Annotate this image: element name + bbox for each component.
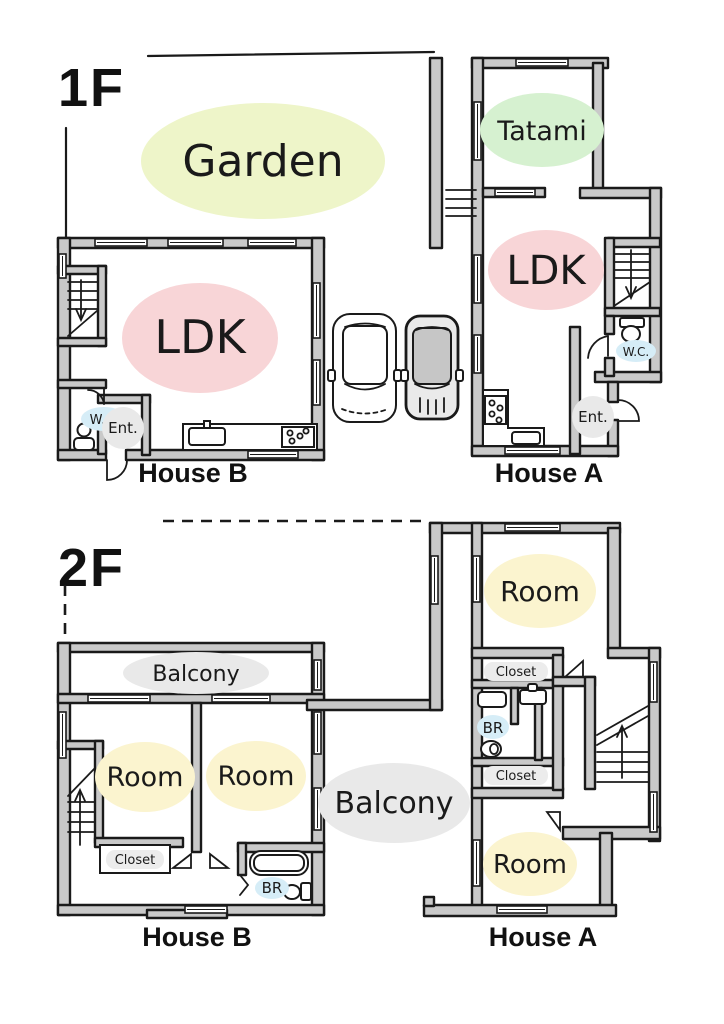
garden-label: Garden — [182, 136, 343, 187]
room-right-label-house-b-2f: Room — [218, 761, 295, 792]
toilet-icon-house-a-1f — [620, 318, 644, 342]
house-b-1f: W.C. Ent. LDK House B — [58, 238, 324, 488]
ent-label-house-a-1f: Ent. — [578, 408, 608, 426]
entry-door-arc-house-b-1f — [107, 460, 127, 480]
bathroom-house-b-2f: BR — [240, 851, 311, 900]
parking-area-1f — [328, 314, 463, 422]
staircase-house-a-2f — [597, 706, 648, 782]
floor-plan-drawing: 1F Garden — [0, 0, 724, 1024]
closet-bottom-label-house-a-2f: Closet — [496, 769, 537, 784]
car-icon-white — [328, 314, 401, 422]
staircase-house-a-1f — [614, 250, 650, 306]
floor2-label: 2F — [58, 538, 125, 598]
closet-top-label-house-a-2f: Closet — [496, 665, 537, 680]
balcony-center-label: Balcony — [335, 786, 454, 821]
central-balcony-2f: Balcony — [307, 700, 470, 843]
room-left-label-house-b-2f: Room — [107, 762, 184, 793]
wc-label-house-a-1f: W.C. — [623, 345, 650, 359]
closet-bottom-house-a-2f: Closet — [484, 766, 548, 785]
wc-house-a-1f: W.C. — [588, 318, 656, 362]
ldk-label-house-b-1f: LDK — [154, 310, 247, 364]
house-b-1f-caption: House B — [138, 458, 248, 488]
ent-label-house-b-1f: Ent. — [108, 419, 138, 437]
house-a-1f-caption: House A — [495, 458, 604, 488]
tatami-label-house-a-1f: Tatami — [496, 116, 587, 147]
kitchen-counter-house-b-1f — [183, 421, 317, 450]
house-a-2f-caption: House A — [489, 922, 598, 952]
kitchen-counter-house-a-1f — [483, 390, 544, 446]
floor-plan-page: 1F Garden — [0, 0, 724, 1024]
floor1-plan: 1F Garden — [58, 52, 661, 488]
closet-top-house-a-2f: Closet — [484, 662, 548, 681]
entry-door-arc-house-a-1f — [618, 400, 639, 421]
closet-label-house-b-2f: Closet — [115, 853, 156, 868]
floor1-label: 1F — [58, 58, 125, 118]
room-top-label-house-a-2f: Room — [500, 575, 580, 608]
room-door-leafs-house-b-2f — [173, 854, 228, 868]
balcony-label-house-b-2f: Balcony — [152, 662, 239, 687]
staircase-house-b-1f — [68, 280, 98, 336]
car-icon-gray — [401, 316, 463, 419]
entrance-house-a-1f: Ent. — [572, 396, 639, 438]
staircase-house-b-2f — [68, 768, 95, 845]
closet-house-b-2f: Closet — [100, 845, 170, 873]
ldk-label-house-a-1f: LDK — [506, 248, 587, 294]
house-a-2f: Room Closet BR Closet — [424, 523, 660, 952]
br-label-house-a-2f: BR — [483, 719, 504, 737]
floor2-plan: 2F — [58, 521, 660, 952]
house-b-2f-caption: House B — [142, 922, 252, 952]
house-b-2f: Balcony Closet — [58, 643, 324, 952]
toilet-icon-house-a-2f — [481, 741, 501, 757]
br-label-house-b-2f: BR — [262, 879, 283, 897]
house-a-1f: Tatami W.C. — [430, 58, 661, 488]
room-bottom-label-house-a-2f: Room — [493, 850, 567, 880]
folding-door-house-b-2f — [240, 875, 248, 895]
